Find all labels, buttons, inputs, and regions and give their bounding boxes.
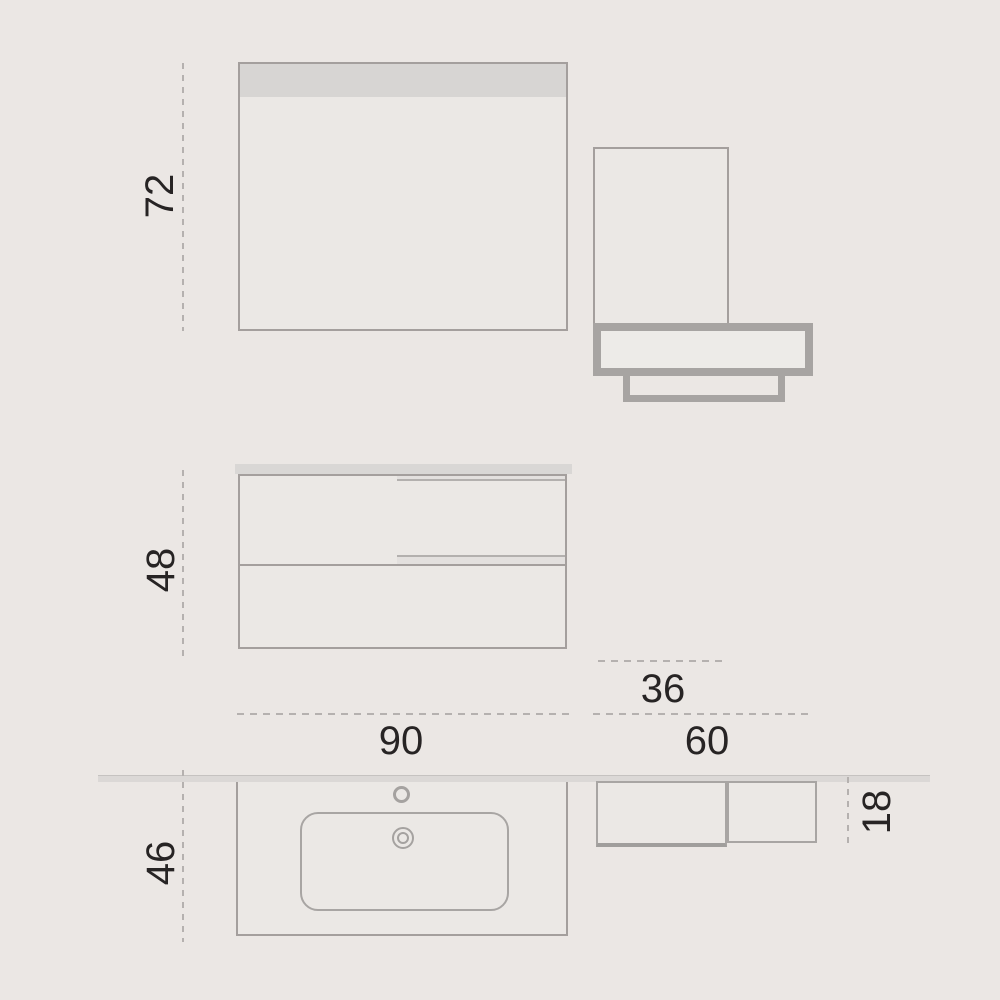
dimension-line-mirror-height (182, 63, 184, 331)
faucet-hole-icon (393, 786, 410, 803)
dimension-label-vanity-height: 48 (141, 548, 181, 593)
shelf-lower-tray-front-view (623, 376, 785, 402)
dimension-label-column-width: 36 (641, 669, 686, 709)
dimension-label-mirror-height: 72 (140, 174, 180, 219)
drawer-divider-line (239, 564, 566, 566)
shelf-unit-top-view (596, 781, 727, 847)
dimension-line-shelf-depth (847, 777, 849, 847)
drain-inner-circle-icon (397, 832, 409, 844)
dimension-label-shelf-width: 60 (685, 721, 730, 761)
dimension-line-shelf-width (593, 713, 813, 715)
mirror-top-band (240, 64, 566, 97)
dimension-label-vanity-width: 90 (379, 721, 424, 761)
dimension-line-vanity-width (237, 713, 570, 715)
tall-column-front-view (593, 147, 729, 327)
wall-shelf-front-view (593, 323, 813, 376)
countertop-front-edge (235, 464, 572, 474)
mirror-front-view (238, 62, 568, 331)
dimension-label-shelf-depth: 18 (857, 790, 897, 835)
dimension-label-counter-depth: 46 (141, 841, 181, 886)
shelf-extension-top-view (727, 781, 817, 843)
dimension-line-column-width (598, 660, 728, 662)
drawer-handle-groove-top (397, 476, 565, 481)
drawer-handle-groove-middle (397, 555, 565, 564)
dimension-diagram: 72 48 46 18 36 90 60 (0, 0, 1000, 1000)
